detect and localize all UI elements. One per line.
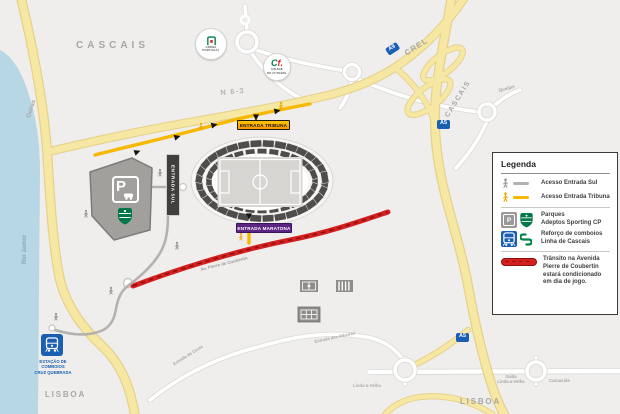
parking-icon: P [501,212,517,228]
walker-icon [239,233,242,240]
label-rio-jamor: Rio Jamor [22,235,28,264]
gray-route-swatch [513,182,529,185]
legend-item-transito: Trânsito na Avenida Pierre de Coubertin … [501,256,610,287]
parking-letter: P [116,178,126,195]
train-station [41,325,63,356]
label-linda-a-velha: Linda-a-Velha [353,383,381,388]
station-label: ESTAÇÃO DE COMBOIOS CRUZ QUEBRADA [32,359,74,375]
label-cascais-nw: CASCAIS [76,40,149,51]
parking-area [90,158,152,240]
a5-badge-north: A5 [437,120,450,129]
train-icon [501,231,517,247]
sports-facilities [298,280,353,322]
cidade-futebol-poi: Cf. CIDADE DO FUTEBOL [263,53,291,81]
entrada-sul-badge: ENTRADA SUL [166,154,180,216]
legend-item-acesso-tribuna: Acesso Entrada Tribuna [501,192,610,203]
rail-link-icon [520,233,532,246]
restricted-road-icon [501,258,537,266]
label-carnaxide: Carnaxide [549,378,570,383]
walker-icon [501,192,510,203]
walker-icon [109,287,112,294]
legend-item-acesso-sul: Acesso Entrada Sul [501,178,610,189]
walker-icon [84,210,87,217]
entrada-tribuna-badge: ENTRADA TRIBUNA [237,120,290,130]
walker-icon [54,313,57,320]
arena-poi: ARENA PORTUGAL [195,28,227,60]
a5-badge-south: A5 [456,333,469,342]
jamor-access-map: CASCAIS Oeiras Rio Jamor N 6-3 CREL A9 C… [0,0,620,414]
walker-icon [158,169,161,176]
walker-icon [175,242,178,249]
path-node [180,184,187,191]
cf-label-line2: DO FUTEBOL [267,72,287,75]
legend-item-comboios: Reforço de comboios Linha de Cascais [501,231,610,247]
yellow-route-swatch [513,196,529,199]
walker-icon [501,178,510,189]
label-lisboa-se: LISBOA [460,397,501,406]
stadium [191,137,333,225]
entrada-maratona-badge: ENTRADA MARATONA [236,223,292,233]
label-lisboa-sw: LISBOA [45,390,86,399]
legend-title: Legenda [501,159,610,169]
sporting-crest-icon [520,213,533,228]
arena-label-line2: PORTUGAL [202,49,219,52]
label-saida-linda: Saída Linda-a-Velha [496,374,526,385]
legend: Legenda Acesso Entrada Sul Acesso Entrad… [492,152,618,315]
pitch [218,157,303,207]
legend-item-parques: P Parques Adeptos Sporting CP [501,212,610,228]
